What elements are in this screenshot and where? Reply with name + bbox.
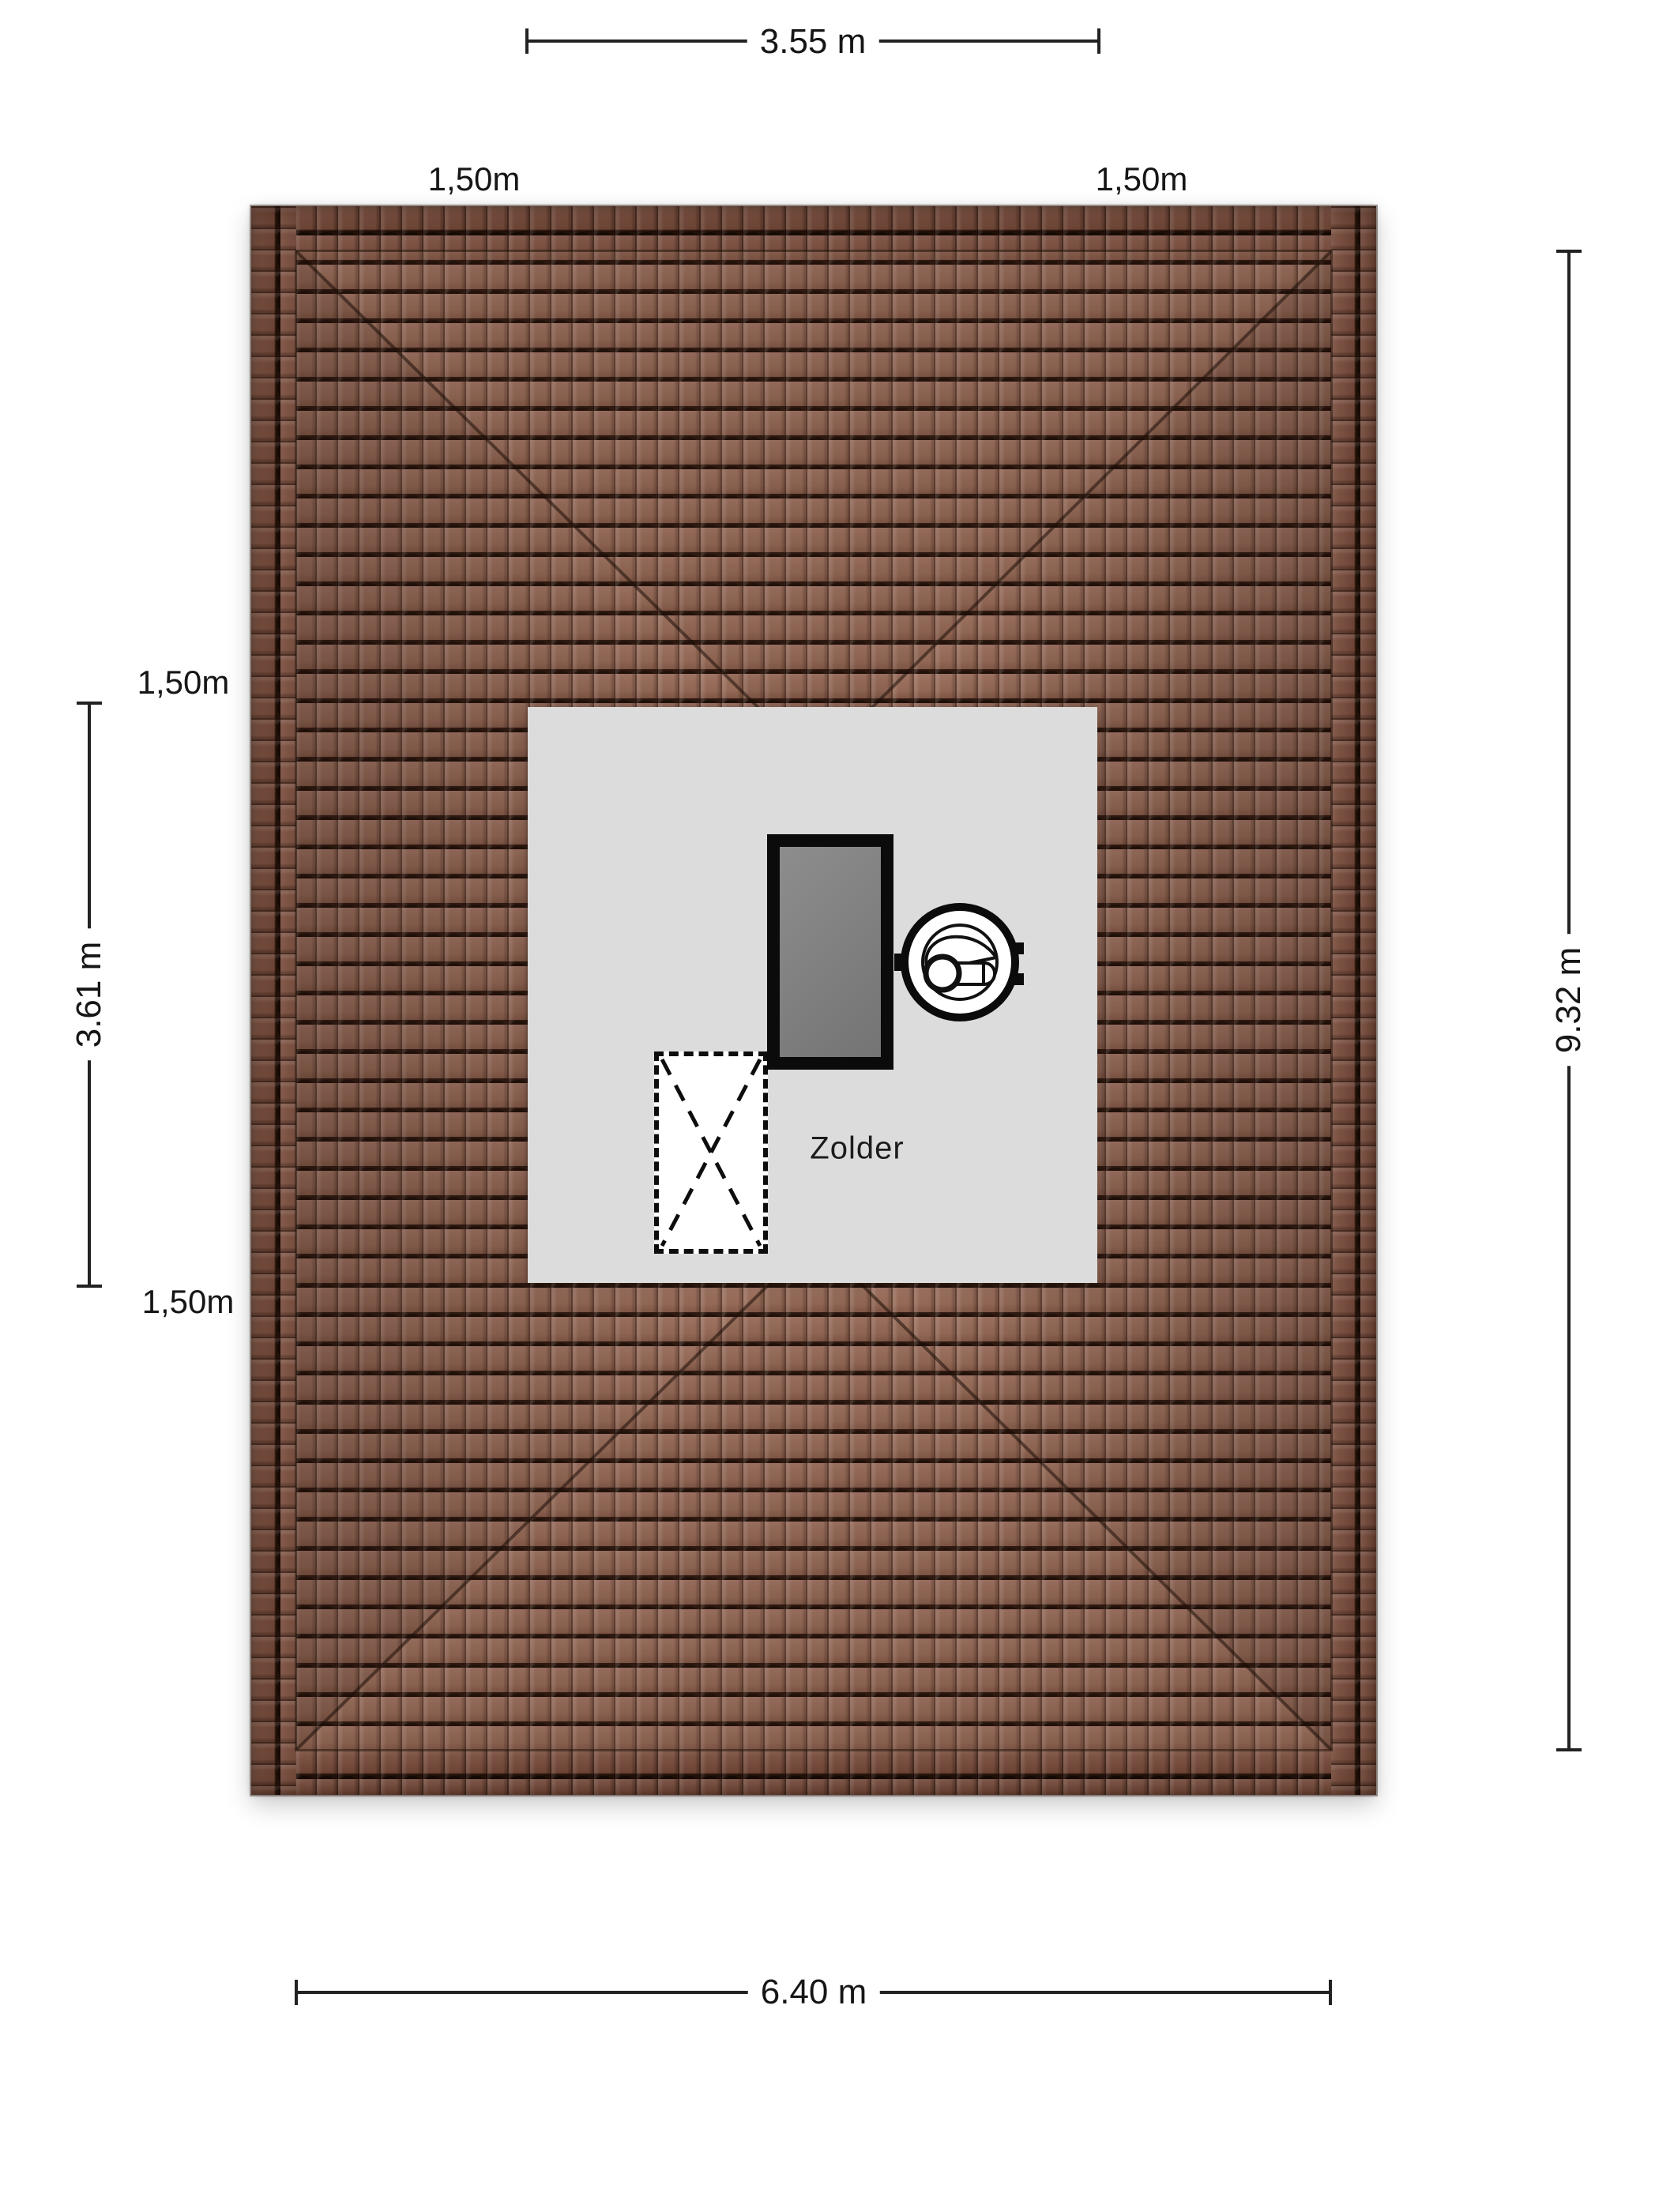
washing-machine-icon — [893, 895, 1027, 1029]
room-label: Zolder — [810, 1131, 904, 1167]
dimension-tick — [295, 1980, 298, 2005]
offset-label-top-right: 1,50m — [1096, 160, 1188, 198]
dimension-label-top: 3.55 m — [747, 21, 879, 63]
dimension-label-bottom: 6.40 m — [748, 1971, 880, 2014]
dimension-tick — [1556, 1748, 1582, 1751]
dimension-tick — [525, 28, 529, 54]
roof-edge-band-top — [251, 206, 1376, 251]
dimension-label-left: 3.61 m — [68, 929, 111, 1061]
stairs-hatch-cross — [659, 1056, 763, 1249]
dimension-tick — [77, 1285, 102, 1288]
attic-room: Zolder — [528, 707, 1097, 1283]
roof-edge-band-left — [251, 206, 296, 1795]
dimension-tick — [1556, 250, 1582, 253]
stairs-hatch-icon — [654, 1051, 768, 1254]
offset-label-top-left: 1,50m — [428, 160, 521, 198]
roof-window-icon — [767, 834, 893, 1070]
roof-edge-band-right — [1331, 206, 1376, 1795]
dimension-tick — [77, 702, 102, 705]
floorplan-canvas: 3.55 m 1,50m 1,50m 1,50m 1,50m 3.61 m 9.… — [0, 0, 1659, 2212]
dimension-tick — [1329, 1980, 1332, 2005]
offset-label-left-lower: 1,50m — [142, 1283, 235, 1321]
offset-label-left-upper: 1,50m — [137, 664, 230, 702]
dimension-tick — [1097, 28, 1100, 54]
roof-edge-band-bottom — [251, 1750, 1376, 1795]
dimension-label-right: 9.32 m — [1548, 935, 1590, 1066]
